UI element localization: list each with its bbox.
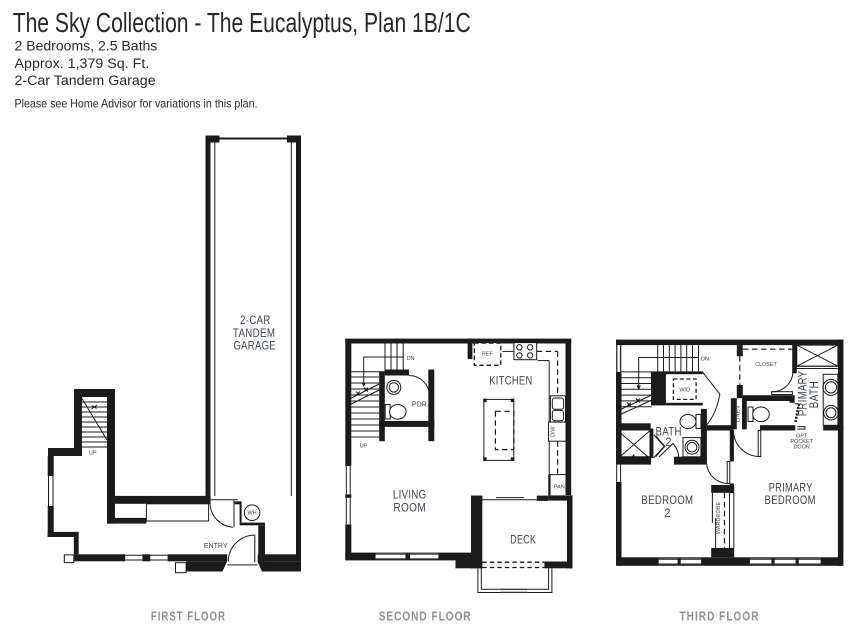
svg-text:DN: DN: [407, 356, 415, 362]
svg-text:WH: WH: [248, 511, 257, 517]
svg-text:LIVING: LIVING: [393, 489, 427, 501]
svg-text:BEDROOM: BEDROOM: [765, 495, 816, 507]
svg-text:DN: DN: [701, 357, 709, 363]
svg-text:The Sky Collection - The Eucal: The Sky Collection - The Eucalyptus, Pla…: [13, 7, 471, 38]
svg-text:ENTRY: ENTRY: [204, 543, 228, 550]
svg-text:REF: REF: [482, 351, 494, 357]
svg-text:SECOND FLOOR: SECOND FLOOR: [379, 610, 472, 624]
svg-text:PDR.: PDR.: [412, 402, 429, 409]
svg-text:PRIMARY: PRIMARY: [769, 482, 813, 494]
svg-text:PRIMARY: PRIMARY: [798, 371, 810, 416]
svg-text:BEDROOM: BEDROOM: [641, 495, 693, 507]
svg-text:Please see Home Advisor for va: Please see Home Advisor for variations i…: [15, 97, 258, 111]
svg-text:PAN.: PAN.: [554, 484, 567, 490]
svg-text:2-CAR: 2-CAR: [240, 315, 271, 327]
svg-text:2: 2: [664, 508, 671, 520]
svg-text:LINEN: LINEN: [736, 406, 742, 422]
svg-text:D/W: D/W: [551, 425, 557, 437]
svg-text:W/D: W/D: [679, 388, 690, 394]
svg-text:UP: UP: [360, 444, 368, 450]
svg-text:BATH: BATH: [809, 381, 821, 409]
svg-text:DECK: DECK: [510, 535, 536, 547]
svg-text:ROOM: ROOM: [393, 502, 426, 514]
svg-text:WARDROBE: WARDROBE: [716, 502, 722, 535]
svg-text:Approx. 1,379 Sq. Ft.: Approx. 1,379 Sq. Ft.: [15, 56, 150, 71]
svg-text:KITCHEN: KITCHEN: [489, 375, 532, 387]
svg-text:GARAGE: GARAGE: [233, 341, 276, 353]
svg-text:FIRST FLOOR: FIRST FLOOR: [151, 610, 226, 624]
svg-text:2-Car Tandem Garage: 2-Car Tandem Garage: [15, 73, 156, 88]
svg-text:2 Bedrooms, 2.5 Baths: 2 Bedrooms, 2.5 Baths: [15, 39, 158, 54]
svg-text:THIRD FLOOR: THIRD FLOOR: [680, 610, 760, 624]
svg-text:UP: UP: [89, 451, 97, 457]
svg-text:DOOR: DOOR: [793, 444, 810, 450]
svg-text:CLOSET: CLOSET: [755, 362, 777, 368]
svg-text:TANDEM: TANDEM: [233, 328, 275, 340]
